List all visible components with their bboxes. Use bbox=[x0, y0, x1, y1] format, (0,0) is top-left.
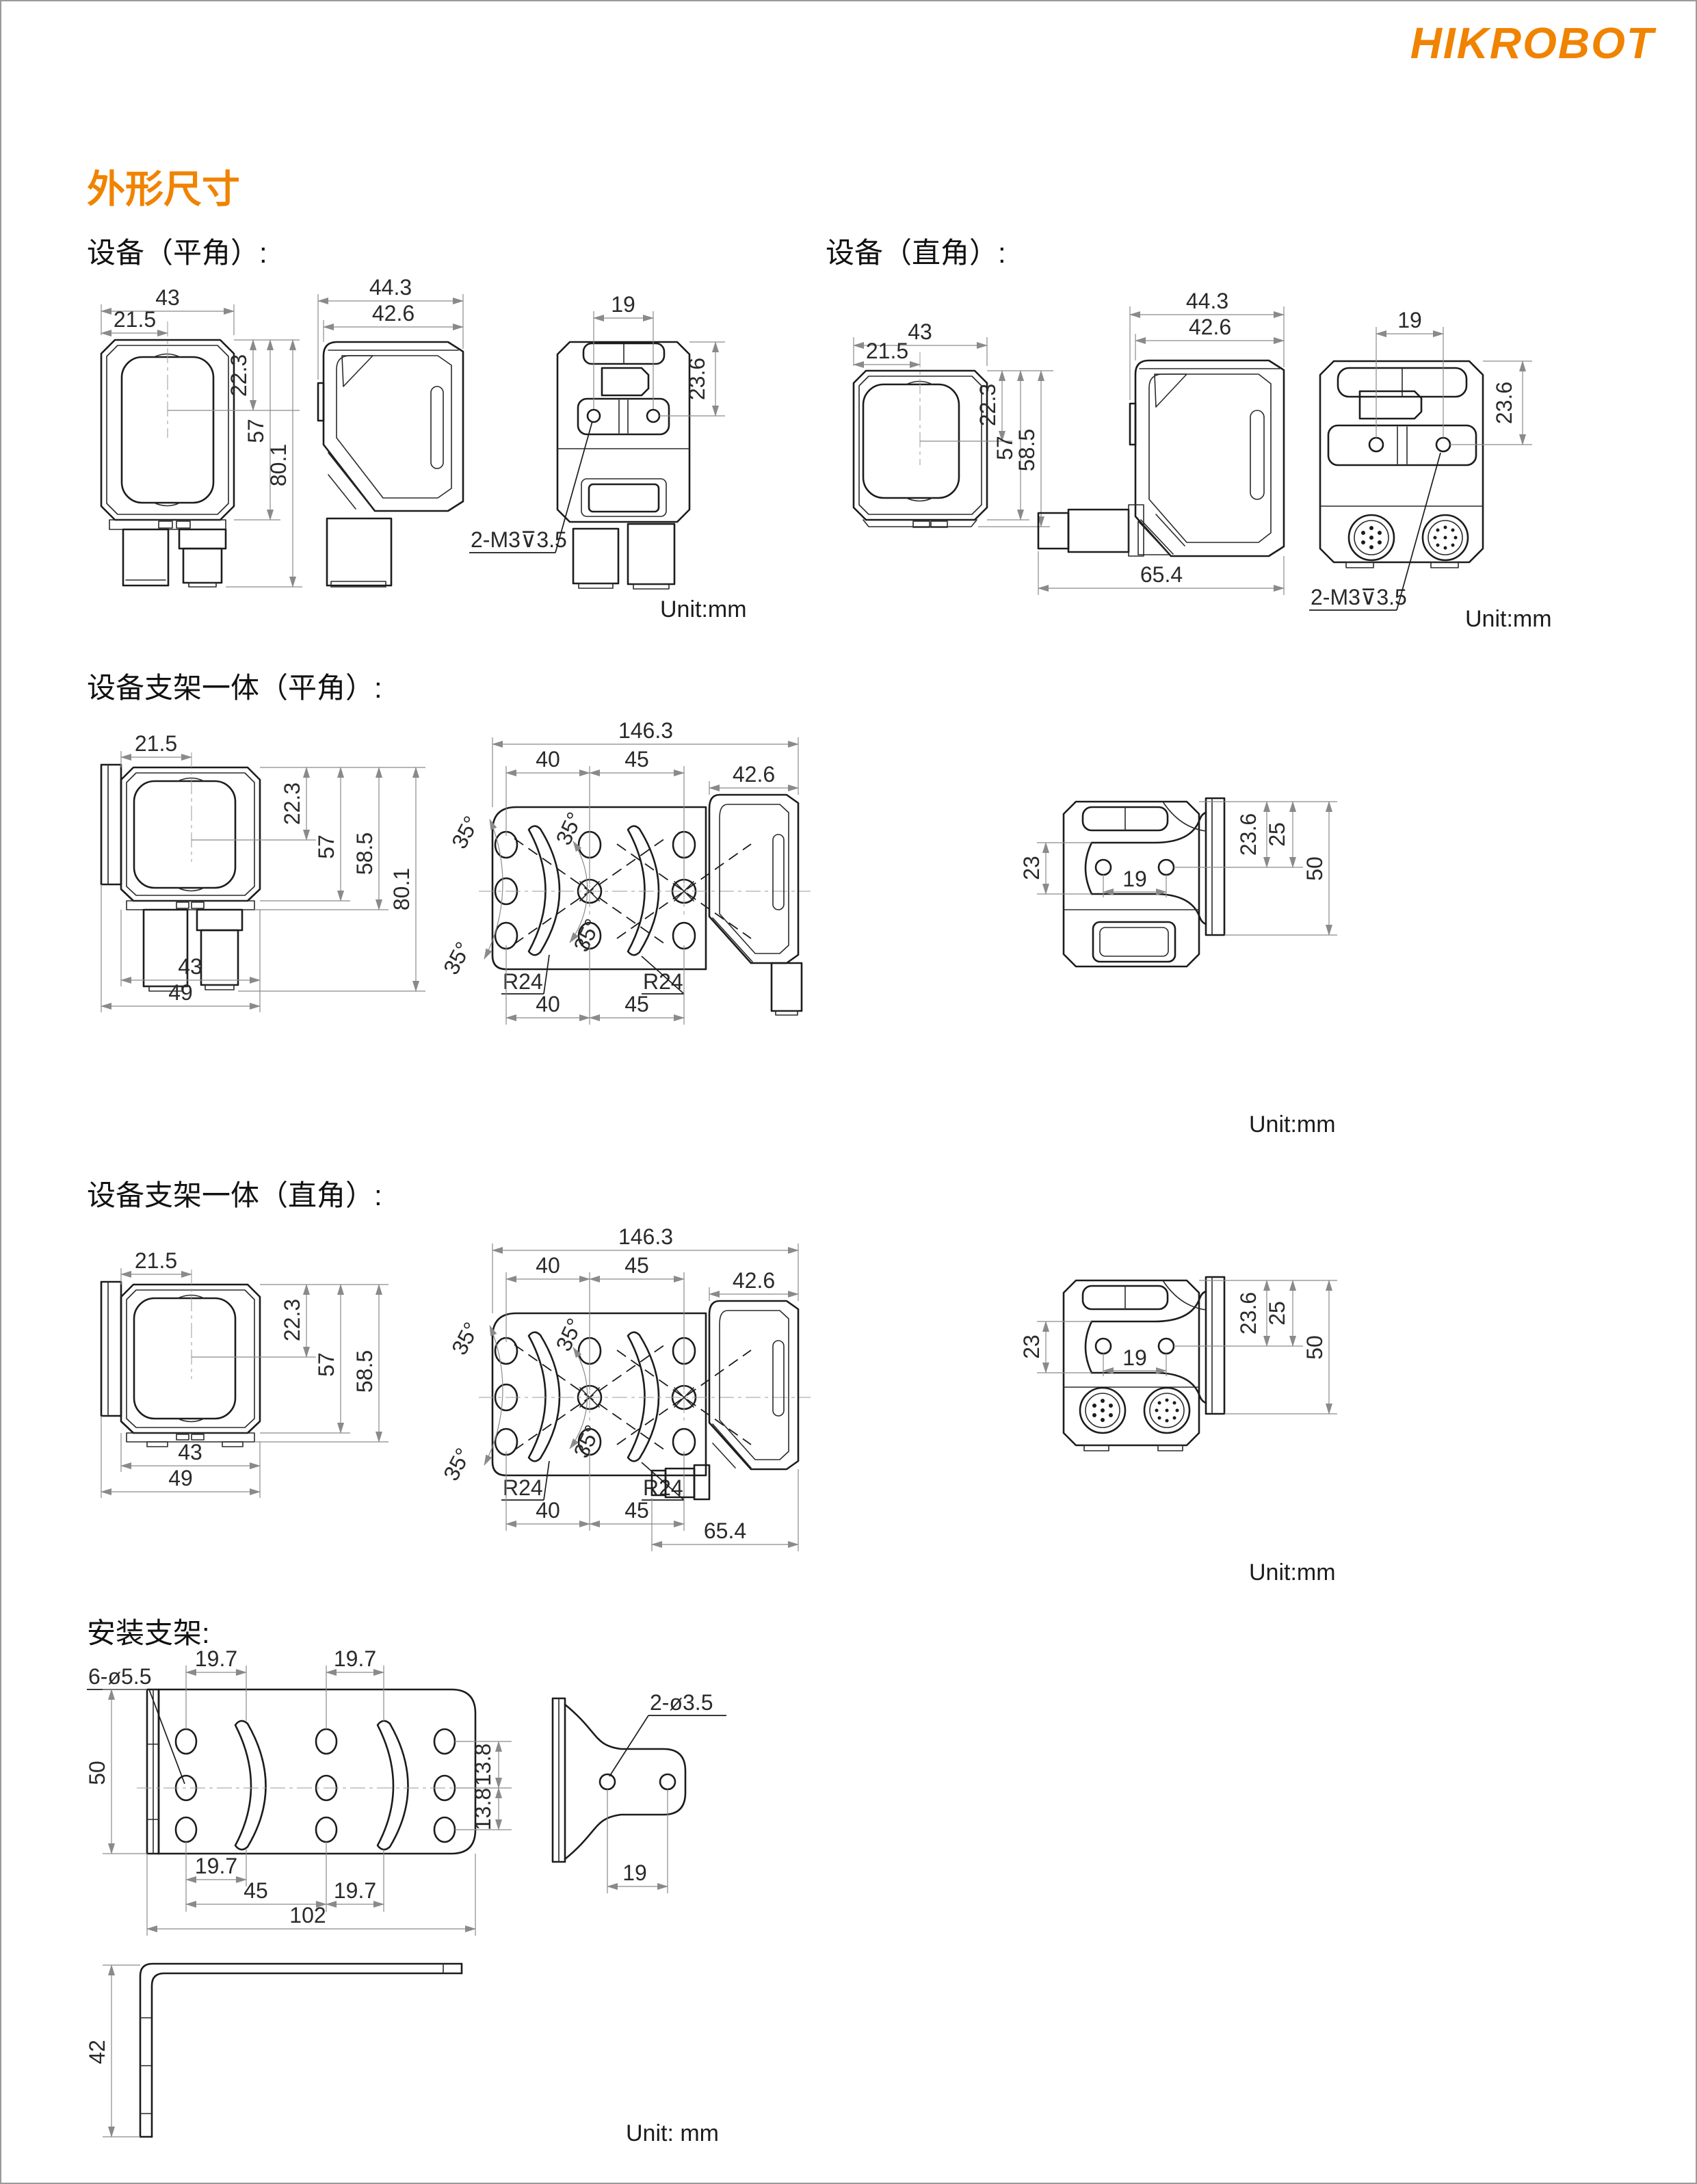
dim-22-3: 22.3 bbox=[975, 384, 1000, 426]
device-right-side-view: 44.3 42.6 65.4 bbox=[1038, 289, 1284, 595]
dim-43: 43 bbox=[178, 954, 202, 979]
dim-21-5: 21.5 bbox=[114, 307, 156, 332]
dim-23: 23 bbox=[1019, 1334, 1044, 1359]
dim-45: 45 bbox=[244, 1878, 268, 1903]
dim-40: 40 bbox=[536, 992, 560, 1016]
dim-19: 19 bbox=[1397, 308, 1422, 332]
dim-50: 50 bbox=[1302, 856, 1327, 881]
device-flat-front-view: 43 21.5 22.3 57 80.1 bbox=[101, 285, 302, 587]
dim-35deg: 35° bbox=[447, 812, 484, 853]
dim-102: 102 bbox=[289, 1903, 326, 1928]
mounting-bracket-clamp-view: 2-ø3.5 19 bbox=[553, 1690, 726, 1893]
dim-22-3: 22.3 bbox=[280, 1299, 304, 1341]
dim-40: 40 bbox=[536, 747, 560, 772]
dim-35deg: 35° bbox=[447, 1318, 484, 1359]
note-thread: 2-M3⊽3.5 bbox=[1311, 585, 1407, 609]
device-right-front-view: 43 21.5 22.3 57 58.5 bbox=[854, 319, 1053, 527]
mounting-bracket-plate-view: 6-ø5.5 19.7 19.7 50 13.8 13.8 bbox=[85, 1646, 512, 1936]
dim-r24: R24 bbox=[503, 969, 543, 994]
dim-40: 40 bbox=[536, 1253, 560, 1278]
dim-21-5: 21.5 bbox=[135, 1248, 177, 1273]
dim-25: 25 bbox=[1265, 1301, 1289, 1326]
device-flat-side-view: 44.3 42.6 bbox=[318, 275, 463, 587]
dim-45: 45 bbox=[624, 1253, 649, 1278]
dim-19-7: 19.7 bbox=[195, 1854, 237, 1878]
dim-r24: R24 bbox=[643, 969, 683, 994]
dim-21-5: 21.5 bbox=[135, 731, 177, 756]
unit-label: Unit:mm bbox=[1249, 1111, 1336, 1137]
dim-58-5: 58.5 bbox=[1014, 429, 1039, 471]
dimension-drawings: 43 21.5 22.3 57 80.1 bbox=[0, 0, 1697, 2184]
dim-146-3: 146.3 bbox=[618, 718, 673, 743]
dim-42-6: 42.6 bbox=[733, 1268, 775, 1293]
dim-43: 43 bbox=[178, 1440, 202, 1464]
dim-35deg: 35° bbox=[438, 938, 476, 979]
dim-49: 49 bbox=[168, 980, 193, 1005]
dim-35deg: 35° bbox=[551, 808, 587, 849]
dim-65-4: 65.4 bbox=[704, 1518, 746, 1543]
dim-19-7: 19.7 bbox=[334, 1878, 376, 1903]
dim-23-6: 23.6 bbox=[1492, 382, 1516, 424]
bracket-flat-rear-view: 23 19 23.6 25 50 Unit:mm bbox=[1019, 798, 1337, 1137]
dim-45: 45 bbox=[624, 992, 649, 1016]
dim-35deg: 35° bbox=[568, 915, 605, 956]
dim-57: 57 bbox=[992, 436, 1017, 460]
dim-19: 19 bbox=[1122, 1345, 1147, 1370]
dim-45: 45 bbox=[624, 1498, 649, 1523]
dim-23-6: 23.6 bbox=[1236, 1292, 1261, 1334]
dim-23: 23 bbox=[1019, 856, 1044, 880]
dim-35deg: 35° bbox=[551, 1315, 587, 1355]
dim-22-3: 22.3 bbox=[280, 782, 304, 825]
dim-42-6: 42.6 bbox=[733, 762, 775, 787]
dim-44-3: 44.3 bbox=[1186, 289, 1228, 313]
mounting-bracket-angle-view: 42 Unit: mm bbox=[85, 1964, 719, 2146]
dim-42: 42 bbox=[85, 2040, 109, 2064]
unit-label: Unit:mm bbox=[660, 596, 747, 622]
unit-label: Unit:mm bbox=[1249, 1560, 1336, 1586]
dim-r24: R24 bbox=[503, 1475, 543, 1500]
unit-label: Unit:mm bbox=[1465, 606, 1552, 632]
dim-23-6: 23.6 bbox=[1236, 813, 1261, 856]
bracket-flat-plate-view: 35° 35° 35° 35° R24 R24 146.3 40 45 42.6 bbox=[438, 718, 811, 1025]
dim-58-5: 58.5 bbox=[352, 1350, 377, 1393]
dim-43: 43 bbox=[155, 285, 180, 310]
dim-40: 40 bbox=[536, 1498, 560, 1523]
dim-23-6: 23.6 bbox=[685, 358, 709, 400]
dim-58-5: 58.5 bbox=[352, 832, 377, 875]
bracket-flat-front-view: 21.5 22.3 57 58.5 80.1 43 49 bbox=[101, 731, 425, 1012]
dim-35deg: 35° bbox=[438, 1444, 476, 1485]
dim-146-3: 146.3 bbox=[618, 1224, 673, 1249]
dim-19: 19 bbox=[1122, 867, 1147, 891]
dim-43: 43 bbox=[908, 319, 932, 344]
dim-42-6: 42.6 bbox=[372, 301, 415, 326]
dim-13-8: 13.8 bbox=[471, 1744, 495, 1786]
dim-50: 50 bbox=[85, 1761, 109, 1785]
dim-80-1: 80.1 bbox=[389, 868, 414, 910]
dim-42-6: 42.6 bbox=[1189, 315, 1231, 339]
bracket-right-rear-view: 23 19 23.6 25 50 Unit:mm bbox=[1019, 1277, 1337, 1586]
dim-57: 57 bbox=[244, 419, 268, 443]
dim-19-7: 19.7 bbox=[334, 1646, 376, 1671]
unit-label: Unit: mm bbox=[626, 2120, 719, 2146]
dim-35deg: 35° bbox=[568, 1421, 605, 1462]
dim-57: 57 bbox=[314, 834, 339, 859]
bracket-right-plate-view: 35° 35° 35° 35° R24 R24 146.3 40 45 42.6 bbox=[438, 1224, 811, 1551]
device-flat-rear-view: 19 23.6 2-M3⊽3.5 Unit:mm bbox=[469, 292, 747, 622]
datasheet-page: HIKROBOT 外形尺寸 设备（平角）: 设备（直角）: 设备支架一体（平角）… bbox=[0, 0, 1697, 2184]
dim-57: 57 bbox=[314, 1352, 339, 1377]
note-holes: 6-ø5.5 bbox=[88, 1664, 151, 1689]
note-holes: 2-ø3.5 bbox=[650, 1690, 713, 1715]
dim-65-4: 65.4 bbox=[1140, 562, 1183, 587]
dim-80-1: 80.1 bbox=[266, 444, 291, 486]
dim-19: 19 bbox=[611, 292, 635, 317]
bracket-right-front-view: 21.5 22.3 57 58.5 43 49 bbox=[101, 1248, 389, 1498]
dim-19-7: 19.7 bbox=[195, 1646, 237, 1671]
dim-22-3: 22.3 bbox=[226, 354, 251, 397]
dim-21-5: 21.5 bbox=[866, 339, 908, 363]
dim-49: 49 bbox=[168, 1466, 193, 1490]
dim-25: 25 bbox=[1265, 822, 1289, 847]
note-thread: 2-M3⊽3.5 bbox=[471, 527, 567, 552]
dim-13-8: 13.8 bbox=[471, 1788, 495, 1830]
dim-50: 50 bbox=[1302, 1335, 1327, 1360]
dim-19: 19 bbox=[622, 1860, 647, 1885]
dim-44-3: 44.3 bbox=[369, 275, 412, 300]
device-right-rear-view: 19 23.6 2-M3⊽3.5 Unit:mm bbox=[1309, 308, 1552, 632]
dim-45: 45 bbox=[624, 747, 649, 772]
dim-r24: R24 bbox=[643, 1475, 683, 1500]
